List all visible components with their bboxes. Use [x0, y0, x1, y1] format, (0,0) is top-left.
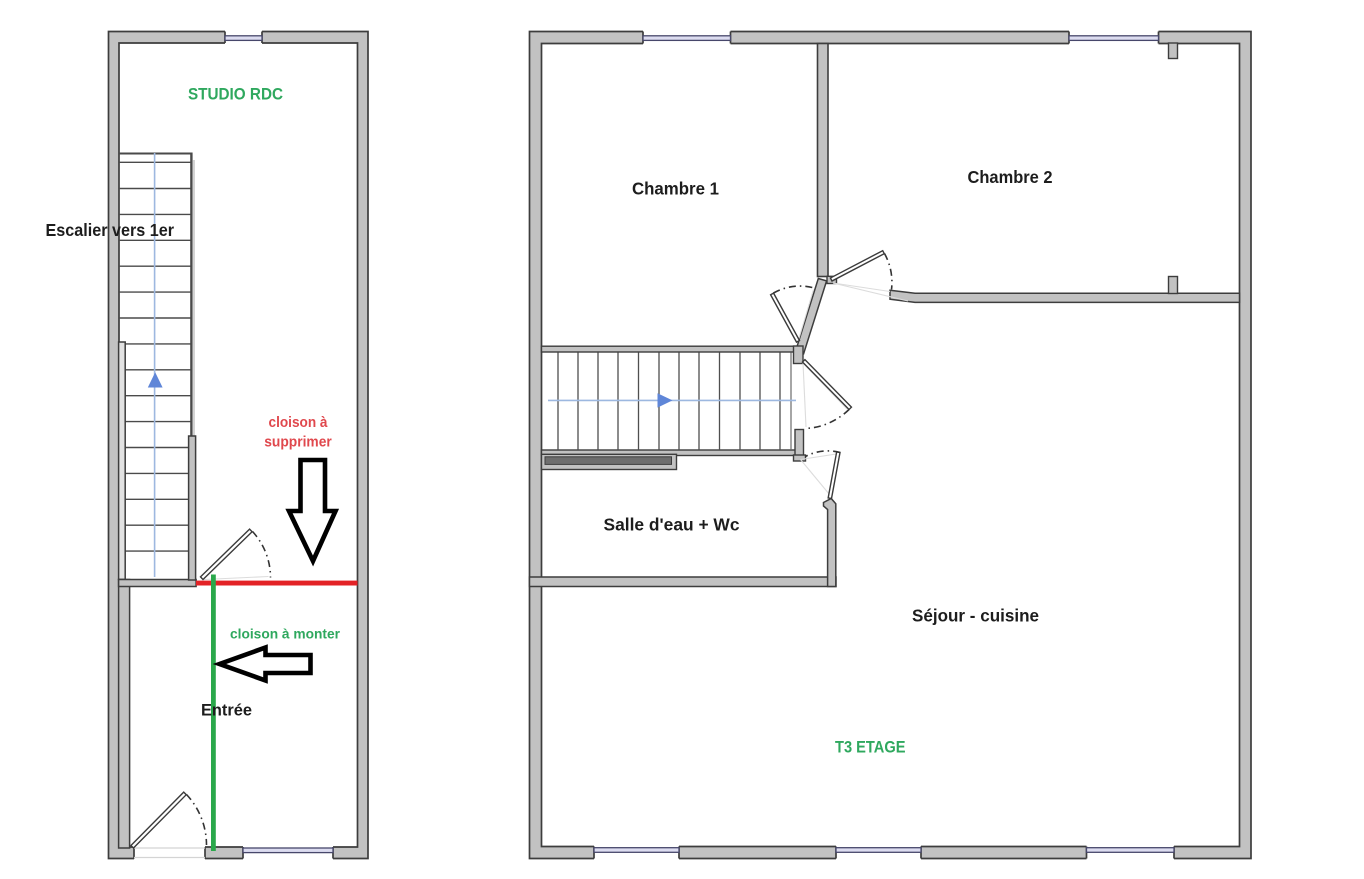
svg-text:Entrée: Entrée: [201, 701, 252, 720]
svg-text:STUDIO RDC: STUDIO RDC: [188, 85, 283, 104]
svg-text:T3 ETAGE: T3 ETAGE: [835, 738, 906, 757]
svg-text:cloison à monter: cloison à monter: [230, 626, 341, 642]
svg-text:Séjour - cuisine: Séjour - cuisine: [912, 606, 1039, 626]
svg-text:Chambre 1: Chambre 1: [632, 179, 719, 199]
svg-text:Chambre 2: Chambre 2: [968, 167, 1053, 187]
svg-text:Escalier vers 1er: Escalier vers 1er: [46, 220, 175, 240]
svg-text:supprimer: supprimer: [264, 435, 332, 451]
svg-text:Salle d'eau + Wc: Salle d'eau + Wc: [604, 515, 740, 535]
svg-text:cloison à: cloison à: [269, 415, 329, 431]
